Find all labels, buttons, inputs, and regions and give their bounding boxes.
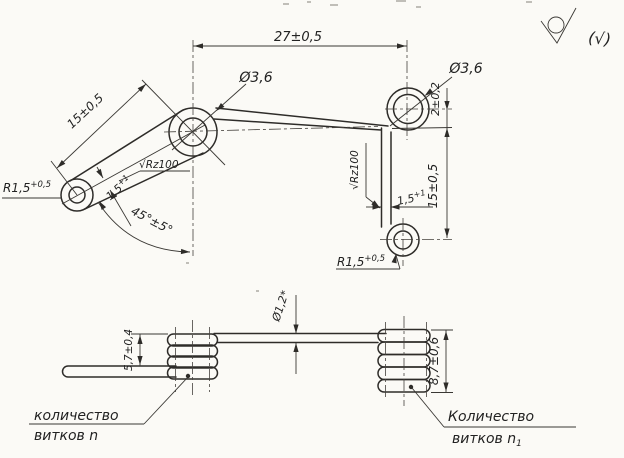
dim-87-label: 8,7±0,6 bbox=[427, 337, 441, 386]
dim-57-label: 5,7±0,4 bbox=[123, 329, 135, 371]
dim-15-right-label: 15±0,5 bbox=[426, 164, 440, 208]
diagonal-extension bbox=[142, 80, 225, 165]
dim-15-ext bbox=[51, 161, 77, 195]
surface-finish-note: (√) bbox=[541, 8, 612, 49]
r15-right-label: R1,5+0,5 bbox=[337, 254, 385, 269]
callout-left-line1: количество bbox=[34, 408, 119, 424]
coil-wire-outline bbox=[63, 330, 431, 393]
rz-right-label: √Rz100 bbox=[349, 150, 361, 190]
r15-right-leader bbox=[396, 255, 400, 269]
callout-right-line1: Количество bbox=[448, 409, 534, 425]
scan-artifacts bbox=[186, 0, 532, 292]
dimension-lines bbox=[2, 46, 452, 269]
callout-left-line2: витков n bbox=[34, 428, 98, 444]
dia36-left-label: Ø3,6 bbox=[238, 70, 272, 86]
callout-right-line2: витков n1 bbox=[452, 431, 522, 449]
spring-wire-outline bbox=[61, 88, 429, 256]
bottom-view: Ø1,2* 5,7±0,4 8,7±0,6 количество витков … bbox=[29, 288, 576, 449]
link-upper-edge bbox=[216, 108, 388, 126]
callout-left-dot bbox=[186, 374, 190, 378]
dim-27-label: 27±0,5 bbox=[274, 30, 322, 45]
ext-y127 bbox=[392, 128, 452, 129]
wire-width-right-label: 1,5+1 bbox=[396, 188, 428, 208]
callout-right-leader bbox=[412, 388, 444, 427]
spring-drawing: 27±0,5 Ø3,6 Ø3,6 15±0,5 R1,5+0,5 1,5+1 4… bbox=[0, 0, 624, 458]
finish-parenthesized-label: (√) bbox=[587, 28, 612, 49]
arm-axis bbox=[62, 125, 205, 204]
wire-dia-label: Ø1,2* bbox=[269, 288, 292, 324]
dim-2-label: 2±0,2 bbox=[429, 82, 442, 116]
r15-left-label: R1,5+0,5 bbox=[3, 180, 51, 195]
top-view: 27±0,5 Ø3,6 Ø3,6 15±0,5 R1,5+0,5 1,5+1 4… bbox=[2, 30, 483, 269]
angle-45-label: 45°±5° bbox=[129, 204, 175, 237]
centerlines bbox=[164, 40, 452, 266]
dia36-right-label: Ø3,6 bbox=[448, 61, 482, 77]
roughness-symbol-icon bbox=[541, 8, 576, 43]
dim-15-arm-label: 15±0,5 bbox=[64, 91, 106, 132]
dia36-left-leader bbox=[172, 84, 246, 150]
drawing-sheet: 27±0,5 Ø3,6 Ø3,6 15±0,5 R1,5+0,5 1,5+1 4… bbox=[0, 0, 624, 458]
callout-right-dot bbox=[409, 385, 413, 389]
rz-left-label: √Rz100 bbox=[139, 159, 179, 171]
dia36-right-leader bbox=[390, 77, 452, 126]
left-straight-end bbox=[63, 366, 177, 377]
callout-left-leader bbox=[144, 377, 188, 424]
roughness-circle-icon bbox=[548, 17, 564, 33]
